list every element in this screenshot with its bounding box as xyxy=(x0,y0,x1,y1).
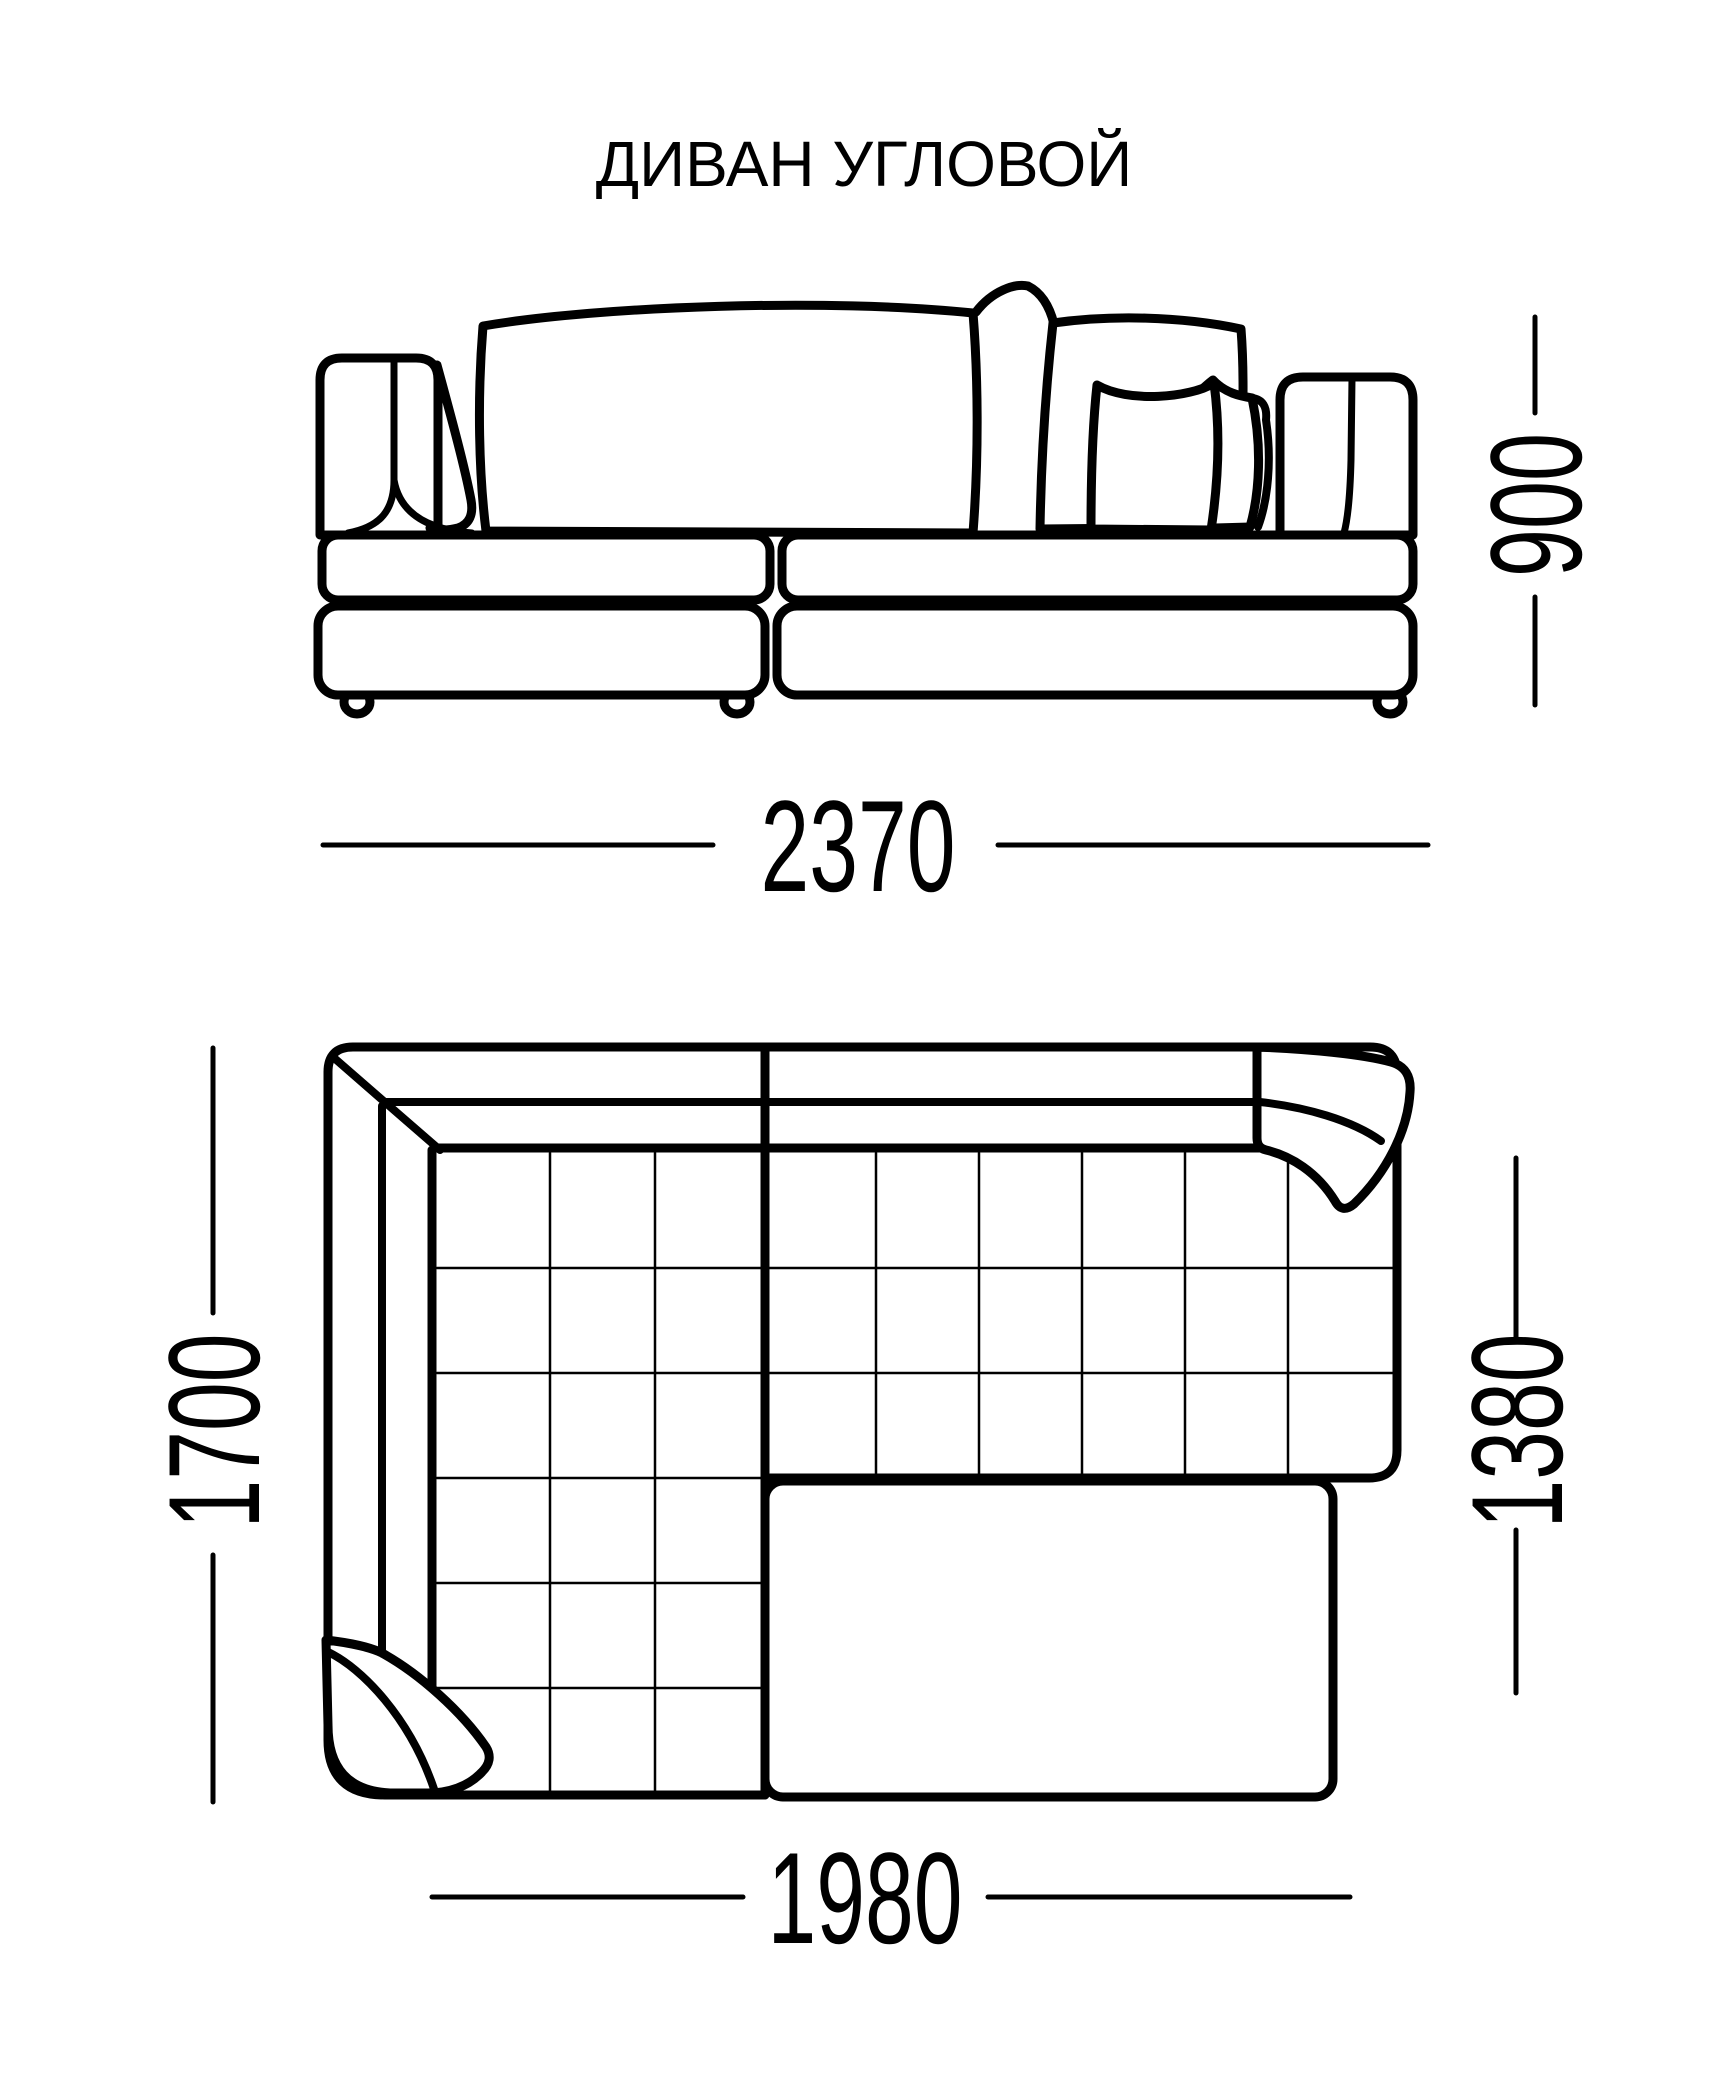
quilt-grid-right xyxy=(768,1153,1395,1476)
dim-top-bottom-width-label: 1980 xyxy=(768,1825,963,1971)
quilt-grid-left xyxy=(437,1153,763,1793)
dim-front-width-label: 2370 xyxy=(761,773,956,919)
seat-base-left xyxy=(318,606,765,695)
back-pillow-fold xyxy=(976,285,1054,324)
seat-cushion-right xyxy=(782,535,1413,600)
corner-chamfer xyxy=(333,1057,387,1104)
dim-front-height: 900 xyxy=(1463,317,1609,705)
left-armrest xyxy=(320,358,438,535)
dim-top-right-height-label: 1380 xyxy=(1444,1334,1590,1529)
dim-top-right-height: 1380 xyxy=(1444,1158,1590,1693)
seat-base-right xyxy=(777,606,1413,695)
dim-front-width: 2370 xyxy=(323,773,1428,919)
page-title: ДИВАН УГЛОВОЙ xyxy=(596,127,1132,200)
dim-top-left-height-label: 1700 xyxy=(141,1334,287,1529)
dim-top-bottom-width: 1980 xyxy=(432,1825,1350,1971)
dim-top-left-height: 1700 xyxy=(141,1048,287,1802)
ottoman xyxy=(765,1481,1333,1797)
corner-pillow-top-right xyxy=(1256,1047,1410,1208)
back-pillow xyxy=(479,305,977,533)
seat-cushion-left xyxy=(322,535,770,600)
front-view xyxy=(318,285,1413,714)
corner-chamfer xyxy=(387,1104,440,1150)
sofa-technical-drawing: ДИВАН УГЛОВОЙ xyxy=(0,0,1729,2089)
dim-front-height-label: 900 xyxy=(1463,433,1609,577)
top-view xyxy=(326,1047,1410,1797)
decor-pillow-front xyxy=(1091,383,1218,530)
